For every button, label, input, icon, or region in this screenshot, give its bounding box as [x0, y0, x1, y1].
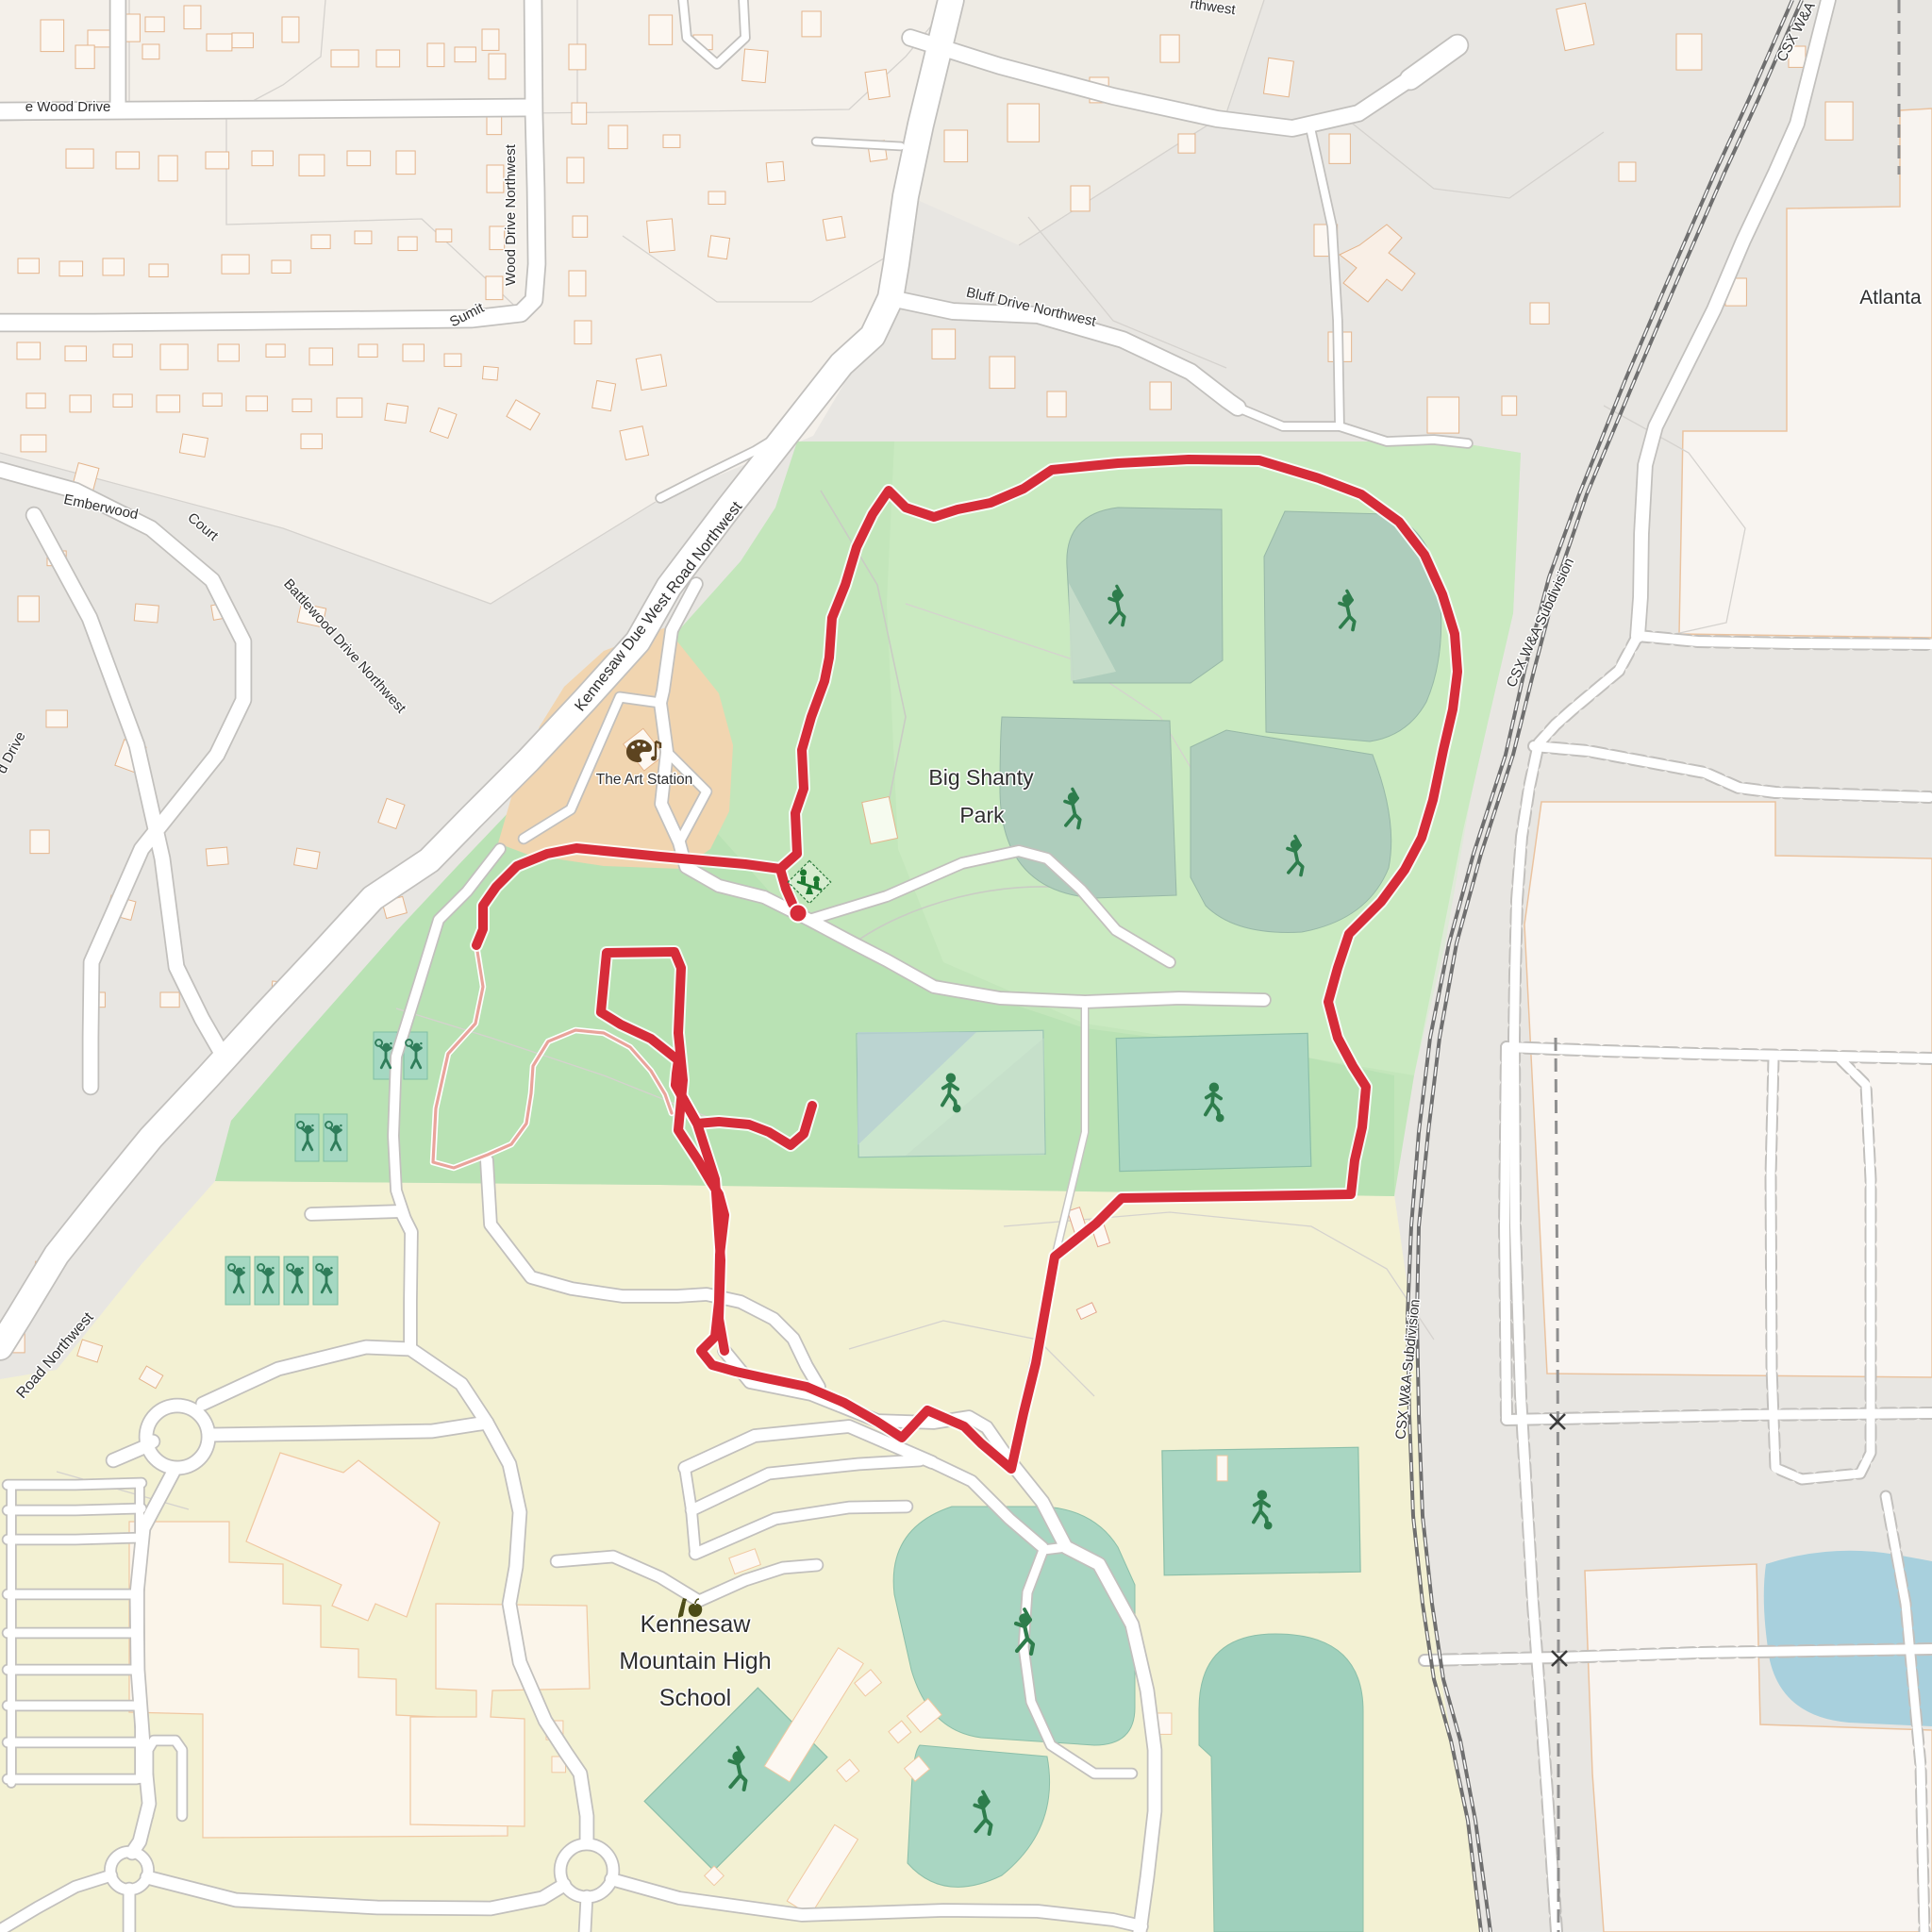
svg-text:The Art Station: The Art Station	[596, 772, 693, 788]
svg-text:Mountain High: Mountain High	[619, 1648, 771, 1674]
svg-text:Park: Park	[959, 803, 1005, 827]
svg-text:School: School	[659, 1685, 731, 1711]
svg-text:Big Shanty: Big Shanty	[928, 765, 1034, 790]
svg-text:Atlanta: Atlanta	[1859, 287, 1922, 308]
svg-text:Wood Drive Northwest: Wood Drive Northwest	[503, 143, 519, 286]
svg-text:e Wood Drive: e Wood Drive	[25, 99, 111, 115]
svg-text:Kennesaw: Kennesaw	[641, 1611, 752, 1638]
